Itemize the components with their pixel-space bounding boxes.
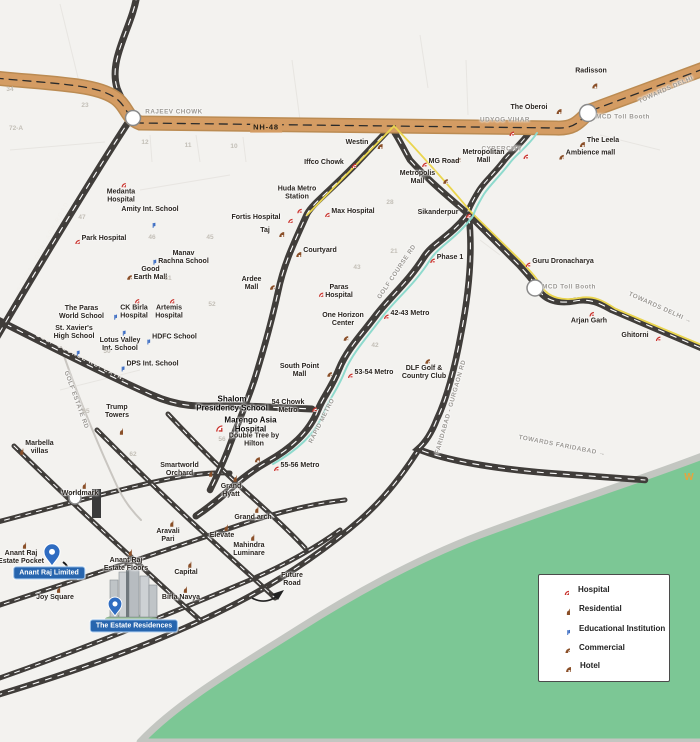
manav-rachna-school-label: Manav Rachna School	[158, 250, 209, 267]
hosp-icon	[164, 293, 174, 303]
south-point-mall-label: South Point Mall	[280, 363, 319, 380]
mcd-toll-booth-right-label: MCD Toll Booth	[542, 283, 596, 290]
udyog-vihar-metro	[504, 126, 514, 136]
res-icon	[217, 518, 228, 531]
res-icon	[12, 442, 23, 455]
res-icon	[559, 602, 570, 615]
res-icon	[247, 500, 258, 513]
sector-number-56: 56	[218, 436, 225, 444]
metro-55-56: 55-56 Metro	[269, 461, 320, 471]
ghitorni-metro: Ghitorni	[621, 331, 660, 341]
hotel-icon	[248, 450, 260, 462]
sector-number-46: 46	[148, 234, 155, 242]
metro-icon	[520, 257, 530, 267]
capital-label: Capital	[174, 569, 197, 577]
the-estate-residences-badge[interactable]: The Estate Residences	[90, 619, 178, 632]
park-hospital: Park Hospital	[70, 234, 127, 244]
smartworld-orchard: Smartworld Orchard	[160, 462, 212, 479]
artemis-hospital-label: Artemis Hospital	[155, 304, 183, 321]
sector-number-label: 51	[164, 275, 171, 283]
sector-number-23: 23	[81, 102, 88, 110]
legend-item-commercial: Commercial	[559, 642, 665, 653]
sector-number-label: 42	[371, 342, 378, 350]
marbella-villas-label: Marbella villas	[25, 440, 53, 457]
comm-icon	[553, 149, 564, 160]
metro-icon	[379, 309, 389, 319]
metro-53-54-label: 53-54 Metro	[355, 369, 394, 377]
st-xaviers-school: St. Xavier's High School	[54, 325, 95, 356]
marengo-asia-hospital-label: Marengo Asia Hospital	[224, 416, 276, 435]
elevate: Elevate	[210, 518, 235, 540]
res-icon	[181, 555, 192, 568]
sector-number-label: 21	[390, 248, 397, 256]
hotel-icon	[585, 77, 597, 89]
joy-square: Joy Square	[36, 580, 74, 602]
metro-icon	[651, 331, 661, 341]
manav-rachna-school: Manav Rachna School	[145, 250, 209, 267]
good-earth-mall: Good Earth Mall	[121, 266, 167, 283]
mg-road-metro-label: MG Road	[429, 158, 460, 166]
metro-icon	[306, 402, 316, 412]
radisson-label: Radisson	[575, 67, 607, 75]
sector-number-52: 52	[208, 301, 215, 309]
ardee-mall: Ardee Mall	[242, 276, 275, 293]
metro-icon	[584, 306, 594, 316]
sector-number-28: 28	[386, 199, 393, 207]
sector-number-43: 43	[353, 264, 360, 272]
paras-hospital-label: Paras Hospital	[325, 284, 353, 301]
guru-dronacharya-metro-label: Guru Dronacharya	[532, 258, 593, 266]
trump-towers: Trump Towers	[105, 404, 129, 435]
anant-raj-estate-pocket-label: Anant Raj Estate Pocket	[0, 550, 44, 567]
grand-hyatt: Grand Hyatt	[221, 469, 242, 500]
sector-number-label: 72-A	[9, 125, 23, 133]
courtyard: Courtyard	[289, 245, 336, 257]
fortis-hospital: Fortis Hospital	[231, 213, 292, 223]
hotel-icon	[573, 135, 585, 147]
sector-number-label: 50	[103, 348, 110, 356]
medanta-hospital-label: Medanta Hospital	[107, 188, 135, 205]
res-icon	[226, 469, 237, 482]
metro-icon	[504, 126, 514, 136]
good-earth-mall-label: Good Earth Mall	[134, 266, 167, 283]
comm-icon	[321, 366, 332, 377]
hotel-icon	[289, 245, 301, 257]
one-horizon-center: One Horizon Center	[322, 312, 364, 341]
metro-icon	[292, 203, 302, 213]
legend: HospitalResidentialEducational Instituti…	[538, 574, 670, 682]
hdfc-school: HDFC School	[139, 332, 197, 345]
hotel-icon	[370, 137, 382, 149]
ambience-mall: Ambience mall	[553, 149, 615, 160]
radisson: Radisson	[575, 67, 607, 88]
metro-icon	[460, 208, 470, 218]
anant-raj-estate-pocket: Anant Raj Estate Pocket	[0, 536, 44, 567]
sector-number-42: 42	[371, 342, 378, 350]
marbella-villas: Marbella villas	[12, 440, 53, 457]
double-tree-hilton-label: Double Tree by Hilton	[229, 432, 279, 449]
hdfc-school-label: HDFC School	[152, 334, 197, 342]
comm-icon	[418, 353, 429, 364]
amity-school-label: Amity Int. School	[121, 206, 178, 214]
edu-icon	[145, 252, 156, 265]
rajeev-chowk-circle	[126, 111, 141, 126]
marengo-asia-hospital: Marengo Asia Hospital	[209, 416, 276, 435]
metro-icon	[425, 253, 435, 263]
max-hospital: Max Hospital	[319, 207, 374, 217]
metro-icon	[343, 368, 353, 378]
comm-icon	[559, 642, 570, 653]
mcd-toll-booth-top: MCD Toll Booth	[596, 113, 650, 120]
rajeev-chowk: RAJEEV CHOWK	[145, 108, 202, 115]
westin: Westin	[346, 137, 383, 149]
hotel-icon	[549, 102, 561, 114]
the-oberoi-label: The Oberoi	[511, 104, 548, 112]
phase-1-metro: Phase 1	[425, 253, 463, 263]
birla-navya-label: Birla Navya	[162, 594, 200, 602]
dlf-golf-country-club: DLF Golf & Country Club	[402, 353, 446, 382]
edu-icon	[144, 215, 155, 228]
metro-54-chowk: 54 Chowk Metro	[272, 399, 317, 416]
grand-hyatt-label: Grand Hyatt	[221, 483, 242, 500]
mg-road-metro: MG Road	[417, 157, 460, 167]
ghitorni-metro-label: Ghitorni	[621, 332, 648, 340]
sector-number-label: 52	[208, 301, 215, 309]
arjan-garh-metro: Arjan Garh	[571, 306, 607, 325]
res-icon	[201, 464, 212, 477]
edu-icon	[69, 342, 80, 355]
the-leela-label: The Leela	[587, 137, 619, 145]
courtyard-label: Courtyard	[303, 247, 336, 255]
edu-icon	[113, 359, 124, 372]
birla-navya: Birla Navya	[162, 580, 200, 602]
sector-number-45: 45	[206, 234, 213, 242]
artemis-hospital: Artemis Hospital	[155, 293, 183, 321]
medanta-hospital: Medanta Hospital	[107, 177, 135, 205]
dps-school: DPS Int. School	[113, 359, 178, 372]
sector-number-12: 12	[141, 139, 148, 147]
sector-number-62: 62	[129, 451, 136, 459]
huda-metro-station: Huda Metro Station	[278, 185, 317, 213]
fortis-hospital-label: Fortis Hospital	[231, 214, 280, 222]
metro-42-43: 42-43 Metro	[379, 309, 430, 319]
nh-48: NH-48	[250, 124, 282, 133]
metro-icon	[518, 149, 528, 159]
ambience-mall-label: Ambience mall	[566, 150, 615, 158]
park-hospital-label: Park Hospital	[82, 235, 127, 243]
res-icon	[120, 543, 131, 556]
legend-item-label: Commercial	[579, 643, 625, 652]
legend-item-label: Educational Institution	[579, 624, 665, 633]
res-icon	[112, 421, 123, 434]
cybercity-metro	[518, 149, 528, 159]
metro-icon	[269, 461, 279, 471]
hosp-icon	[313, 287, 323, 297]
huda-metro-station-label: Huda Metro Station	[278, 185, 317, 202]
legend-item-label: Hospital	[578, 585, 610, 594]
sector-number-label: 46	[148, 234, 155, 242]
sector-number-label: 43	[353, 264, 360, 272]
paras-world-school-label: The Paras World School	[59, 305, 104, 322]
edu-icon	[114, 323, 125, 336]
the-leela: The Leela	[573, 135, 619, 147]
sector-number-label: 62	[129, 451, 136, 459]
comm-icon	[338, 329, 349, 340]
sector-number-34: 34	[6, 86, 13, 94]
watermark-w: W	[684, 472, 693, 484]
aravali-pari: Aravali Pari	[156, 514, 179, 545]
worldmark: Worldmark	[62, 476, 98, 498]
ardee-mall-label: Ardee Mall	[242, 276, 262, 293]
anant-raj-estate-floors: Anant Raj Estate Floors	[104, 543, 148, 574]
south-point-mall: South Point Mall	[280, 363, 332, 380]
sector-number-label: 56	[218, 436, 225, 444]
double-tree-hilton: Double Tree by Hilton	[229, 432, 279, 462]
joy-square-label: Joy Square	[36, 594, 74, 602]
metro-54-chowk-label: 54 Chowk Metro	[272, 399, 305, 416]
sector-number-label: 12	[141, 139, 148, 147]
sector-number-label: 10	[230, 143, 237, 151]
mcd-toll-circle-right	[527, 280, 543, 296]
sikanderpur-metro-label: Sikanderpur	[418, 209, 459, 217]
metro-53-54: 53-54 Metro	[343, 368, 394, 378]
metropolitan-mall-label: Metropolitan Mall	[463, 149, 505, 166]
future-road: Future Road	[281, 572, 303, 589]
iffco-chowk-metro: Iffco Chowk	[304, 158, 356, 168]
the-estate-residences-badge-label: The Estate Residences	[96, 622, 172, 630]
phase-1-metro-label: Phase 1	[437, 254, 463, 262]
westin-label: Westin	[346, 139, 369, 147]
udyog-vihar: UDYOG VIHAR	[480, 116, 530, 123]
shalom-presidency-school: Shalom Presidency School	[196, 395, 268, 414]
legend-item-hospital: Hospital	[559, 585, 665, 595]
anant-raj-limited-badge[interactable]: Anant Raj Limited	[13, 566, 85, 579]
worldmark-label: Worldmark	[62, 490, 98, 498]
metro-icon	[346, 158, 356, 168]
dlf-golf-country-club-label: DLF Golf & Country Club	[402, 365, 446, 382]
sector-number-label: 11	[185, 142, 192, 150]
udyog-vihar-label: UDYOG VIHAR	[480, 116, 530, 123]
metro-55-56-label: 55-56 Metro	[281, 462, 320, 470]
metropolis-mall: Metropolis Mall	[400, 170, 448, 187]
sector-number-10: 10	[230, 143, 237, 151]
res-icon	[162, 514, 173, 527]
sector-number-21: 21	[390, 248, 397, 256]
aravali-pari-label: Aravali Pari	[156, 528, 179, 545]
location-map: RAJEEV CHOWKUDYOG VIHARMCD Toll BoothTOW…	[0, 0, 700, 742]
grand-arch: Grand arch	[234, 500, 271, 522]
future-road-label: Future Road	[281, 572, 303, 589]
metro-42-43-label: 42-43 Metro	[391, 310, 430, 318]
trump-towers-label: Trump Towers	[105, 404, 129, 421]
legend-item-label: Residential	[579, 604, 622, 613]
hotel-icon	[272, 225, 284, 237]
res-icon	[175, 580, 186, 593]
ck-birla-hospital-label: CK Birla Hospital	[120, 304, 148, 321]
res-icon	[15, 536, 26, 549]
capital: Capital	[174, 555, 197, 577]
res-icon	[50, 580, 61, 593]
dps-school-label: DPS Int. School	[126, 361, 178, 369]
anant-raj-estate-floors-label: Anant Raj Estate Floors	[104, 557, 148, 574]
sector-number-label: 45	[206, 234, 213, 242]
sector-number-50: 50	[103, 348, 110, 356]
mahindra-luminare-label: Mahindra Luminare	[233, 542, 265, 559]
iffco-chowk-metro-label: Iffco Chowk	[304, 159, 344, 167]
rajeev-chowk-label: RAJEEV CHOWK	[145, 108, 202, 115]
sector-number-72-A: 72-A	[9, 125, 23, 133]
taj: Taj	[260, 225, 284, 237]
sector-number-11: 11	[185, 142, 192, 150]
hosp-icon	[319, 207, 329, 217]
mcd-toll-booth-top-label: MCD Toll Booth	[596, 113, 650, 120]
paras-world-school: The Paras World School	[59, 305, 117, 322]
res-icon	[75, 476, 86, 489]
cross-icon	[209, 419, 222, 432]
comm-icon	[121, 269, 132, 280]
sector-number-label: 47	[78, 214, 85, 222]
edu-icon	[559, 622, 570, 635]
one-horizon-center-label: One Horizon Center	[322, 312, 364, 329]
metropolis-mall-label: Metropolis Mall	[400, 170, 435, 187]
hosp-icon	[116, 177, 126, 187]
legend-item-residential: Residential	[559, 602, 665, 615]
mcd-toll-circle-top	[580, 105, 597, 122]
sector-number-label: 23	[81, 102, 88, 110]
sector-number-47: 47	[78, 214, 85, 222]
legend-item-hotel: Hotel	[559, 660, 665, 672]
sector-number-label: 28	[386, 199, 393, 207]
metro-icon	[417, 157, 427, 167]
grand-arch-label: Grand arch	[234, 514, 271, 522]
sikanderpur-metro: Sikanderpur	[418, 208, 471, 218]
arjan-garh-metro-label: Arjan Garh	[571, 317, 607, 325]
hosp-icon	[559, 585, 569, 595]
edu-icon	[139, 332, 150, 345]
hosp-icon	[129, 293, 139, 303]
watermark-w-label: W	[684, 472, 693, 484]
elevate-label: Elevate	[210, 532, 235, 540]
guru-dronacharya-metro: Guru Dronacharya	[520, 257, 593, 267]
paras-hospital: Paras Hospital	[313, 284, 353, 301]
amity-school: Amity Int. School	[121, 206, 178, 228]
comm-icon	[437, 173, 448, 184]
legend-item-educational-institution: Educational Institution	[559, 622, 665, 635]
hotel-icon	[559, 660, 571, 672]
shalom-presidency-school-label: Shalom Presidency School	[196, 395, 268, 414]
sector-number-label: 34	[6, 86, 13, 94]
st-xaviers-school-label: St. Xavier's High School	[54, 325, 95, 342]
max-hospital-label: Max Hospital	[331, 208, 374, 216]
nh-48-label: NH-48	[250, 124, 282, 133]
legend-item-label: Hotel	[580, 661, 600, 670]
anant-raj-limited-badge-label: Anant Raj Limited	[19, 569, 79, 577]
smartworld-orchard-label: Smartworld Orchard	[160, 462, 199, 479]
sector-number-65: 65	[82, 408, 89, 416]
sector-number-51: 51	[164, 275, 171, 283]
edu-icon	[106, 307, 117, 320]
mcd-toll-booth-right: MCD Toll Booth	[542, 283, 596, 290]
mahindra-luminare: Mahindra Luminare	[233, 528, 265, 559]
taj-label: Taj	[260, 227, 270, 235]
res-icon	[243, 528, 254, 541]
comm-icon	[263, 279, 274, 290]
hosp-icon	[70, 234, 80, 244]
sector-number-label: 65	[82, 408, 89, 416]
hosp-icon	[283, 213, 293, 223]
ck-birla-hospital: CK Birla Hospital	[120, 293, 148, 321]
the-oberoi: The Oberoi	[511, 102, 562, 114]
